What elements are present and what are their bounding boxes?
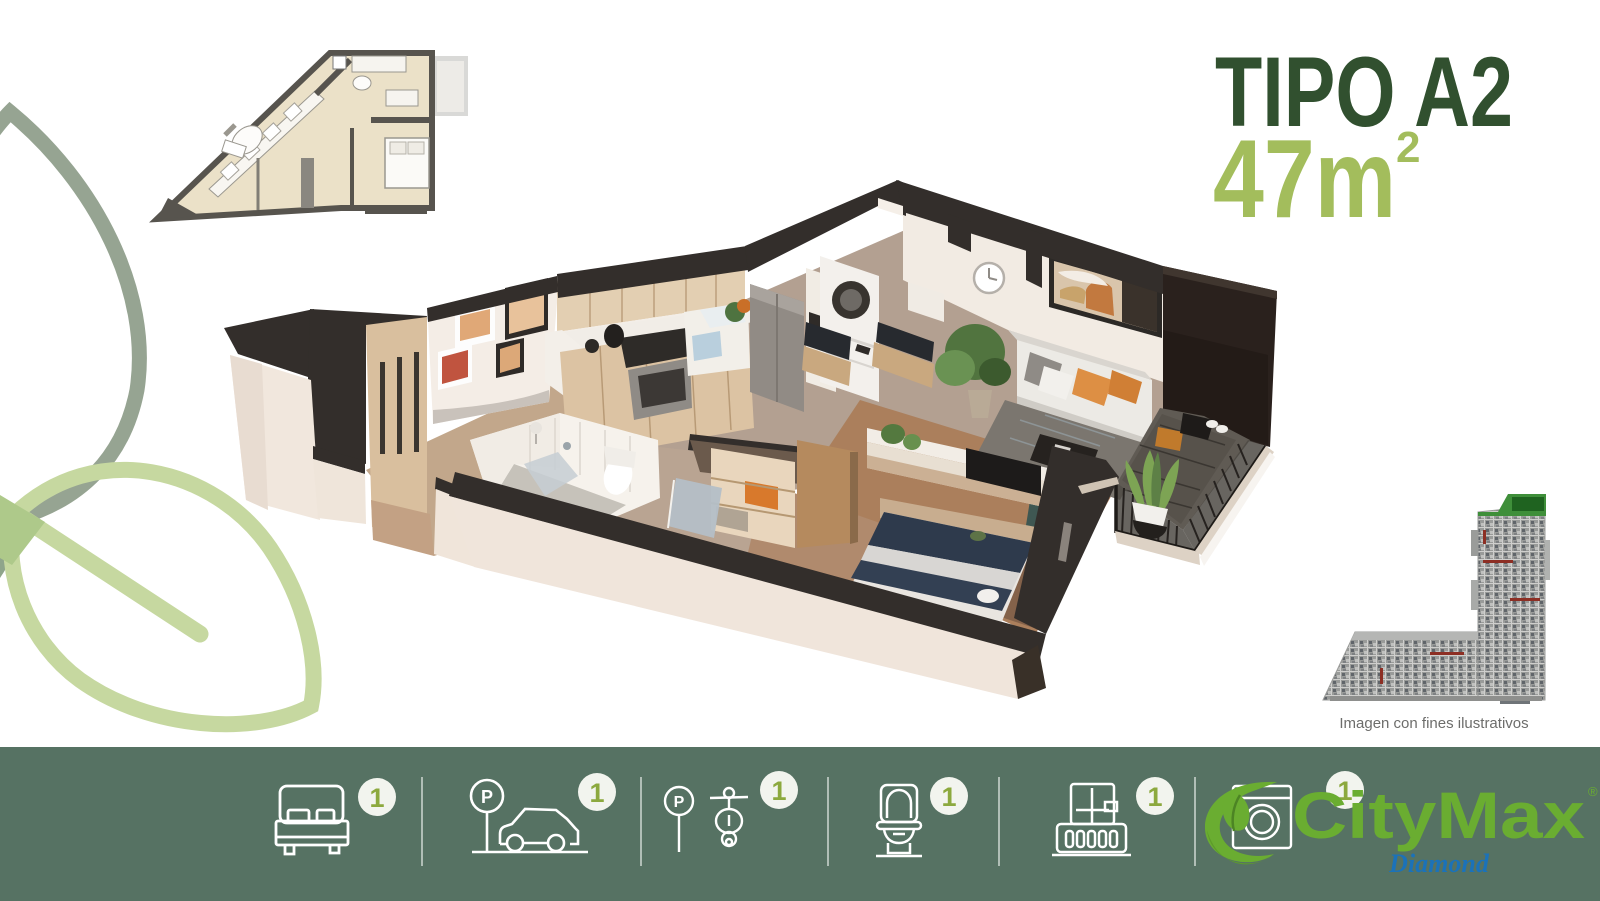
svg-text:1: 1 [589, 778, 604, 808]
svg-text:Imagen con fines ilustrativos: Imagen con fines ilustrativos [1339, 715, 1528, 732]
svg-text:2: 2 [1396, 123, 1420, 172]
svg-text:®: ® [1588, 784, 1598, 799]
svg-text:Diamond: Diamond [1388, 849, 1490, 878]
svg-text:47m: 47m [1213, 117, 1396, 241]
svg-text:P: P [481, 787, 493, 807]
svg-text:1: 1 [369, 783, 384, 813]
svg-text:1: 1 [941, 782, 956, 812]
svg-text:1: 1 [771, 776, 786, 806]
svg-text:1: 1 [1147, 782, 1162, 812]
svg-text:P: P [674, 794, 685, 811]
svg-text:CityMax: CityMax [1292, 778, 1585, 852]
